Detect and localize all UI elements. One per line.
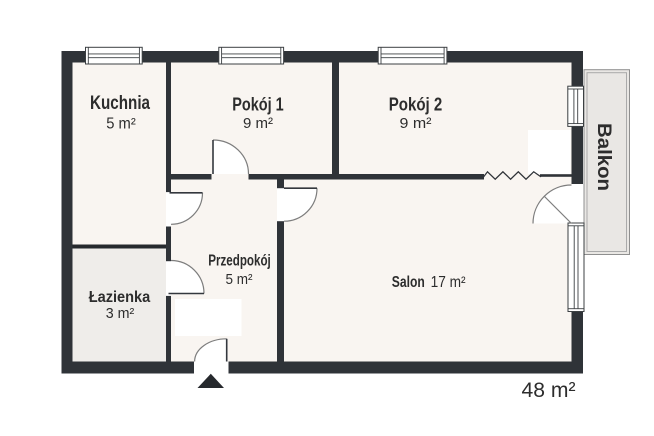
svg-text:Pokój 1: Pokój 1 <box>232 94 284 115</box>
svg-text:48 m²: 48 m² <box>522 379 576 402</box>
svg-text:Kuchnia: Kuchnia <box>90 93 150 114</box>
svg-text:Pokój 2: Pokój 2 <box>389 94 443 115</box>
svg-text:Przedpokój: Przedpokój <box>208 253 271 270</box>
svg-text:5 m²: 5 m² <box>106 116 136 133</box>
svg-text:9 m²: 9 m² <box>400 115 432 132</box>
svg-text:Balkon: Balkon <box>593 123 614 191</box>
svg-text:3 m²: 3 m² <box>106 306 135 322</box>
svg-text:5 m²: 5 m² <box>226 272 253 288</box>
svg-text:9 m²: 9 m² <box>243 115 273 132</box>
svg-text:Łazienka: Łazienka <box>89 289 151 306</box>
